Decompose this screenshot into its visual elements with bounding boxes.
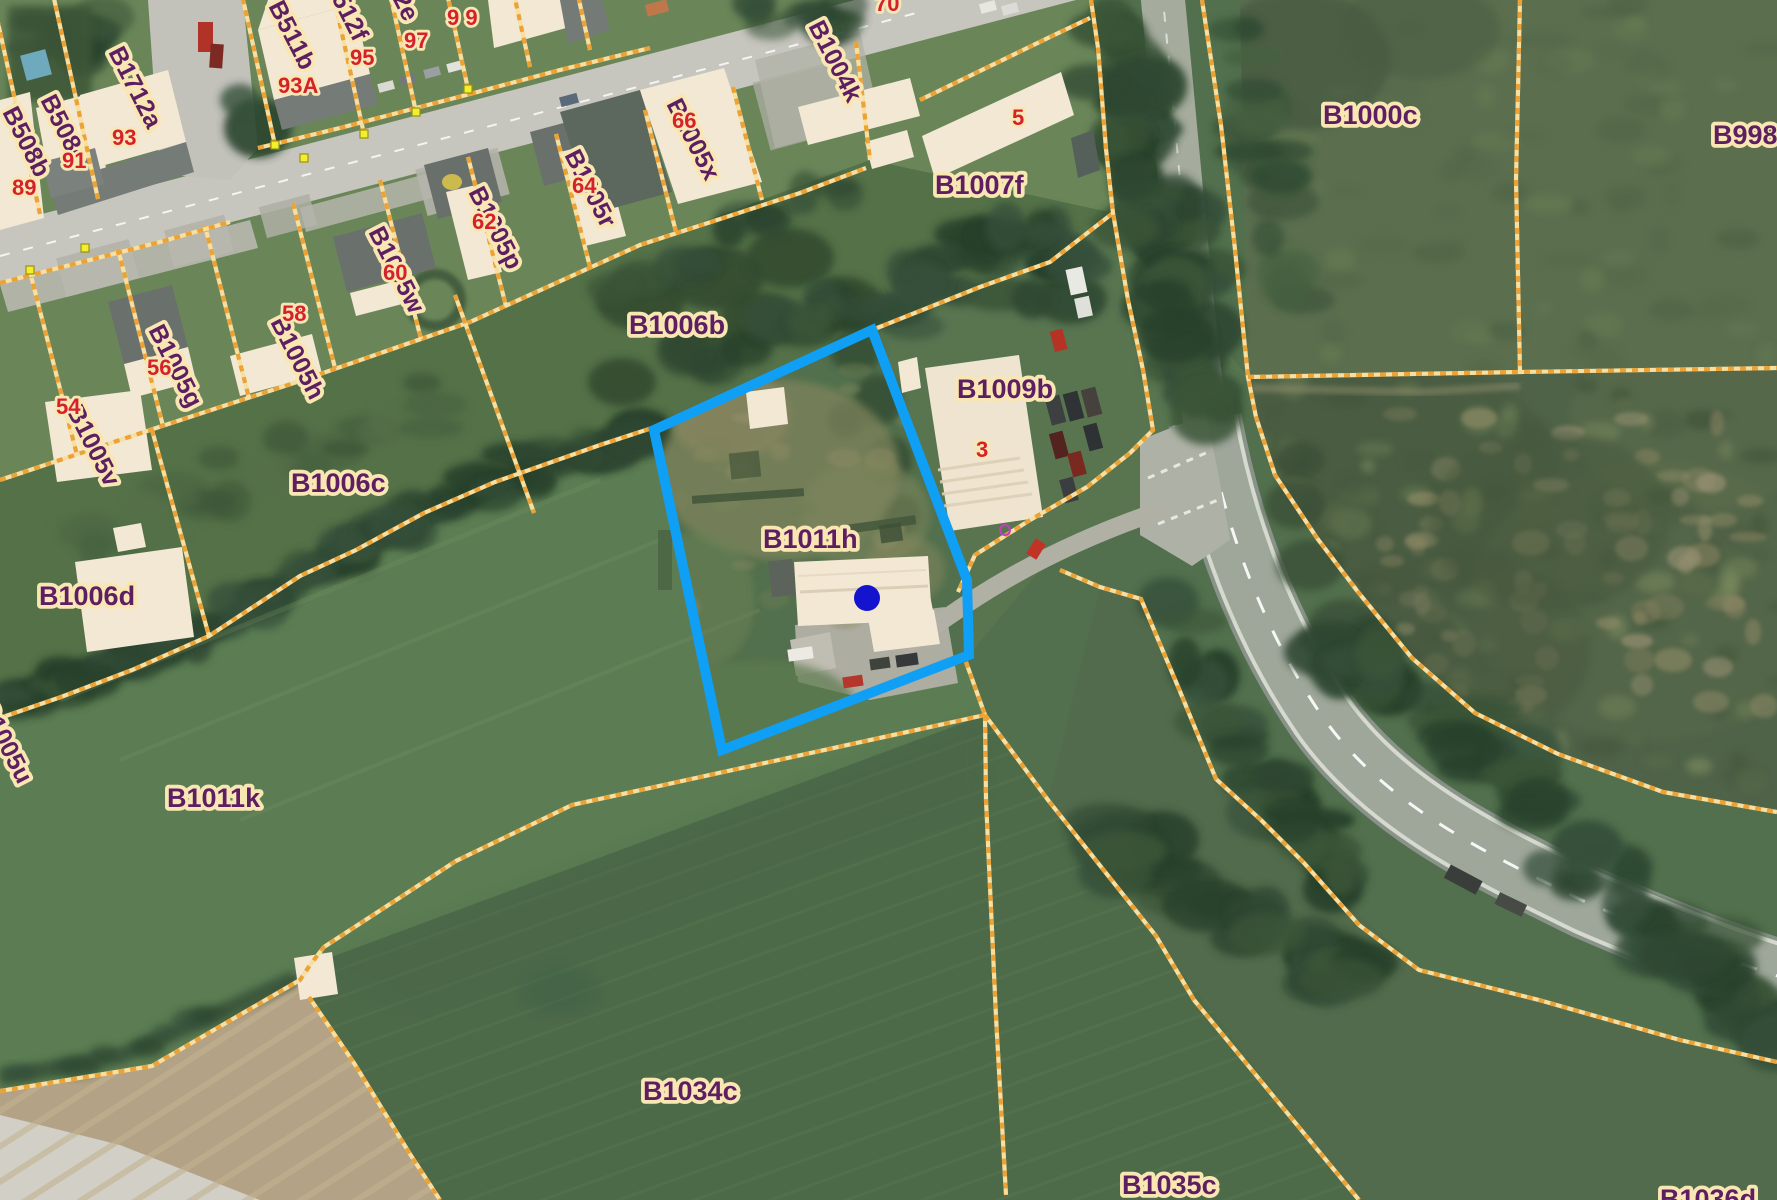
svg-text:91: 91 <box>62 148 86 173</box>
svg-text:B1036d: B1036d <box>1660 1184 1756 1200</box>
svg-text:B1007f: B1007f <box>935 170 1025 200</box>
svg-text:56: 56 <box>147 355 171 380</box>
svg-text:66: 66 <box>672 108 696 133</box>
svg-text:93A: 93A <box>278 73 318 98</box>
svg-text:B1006d: B1006d <box>39 581 135 611</box>
svg-text:62: 62 <box>472 209 496 234</box>
svg-text:60: 60 <box>383 260 407 285</box>
svg-text:5: 5 <box>1012 105 1024 130</box>
svg-text:54: 54 <box>56 394 81 419</box>
svg-text:B998a: B998a <box>1713 120 1777 150</box>
svg-text:B1034c: B1034c <box>643 1076 738 1106</box>
svg-text:58: 58 <box>282 301 306 326</box>
svg-text:89: 89 <box>12 175 36 200</box>
svg-text:70: 70 <box>875 0 899 16</box>
svg-text:9 9: 9 9 <box>447 5 478 30</box>
svg-text:B1035c: B1035c <box>1122 1170 1217 1200</box>
svg-text:B1006b: B1006b <box>629 310 725 340</box>
svg-text:B1011k: B1011k <box>167 783 261 813</box>
svg-text:B1009b: B1009b <box>957 374 1053 404</box>
svg-text:93: 93 <box>112 125 136 150</box>
svg-text:B1006c: B1006c <box>291 468 386 498</box>
svg-text:B1011h: B1011h <box>763 524 858 554</box>
svg-text:B1000c: B1000c <box>1323 100 1418 130</box>
svg-text:64: 64 <box>572 173 597 198</box>
svg-text:95: 95 <box>350 45 374 70</box>
svg-text:97: 97 <box>404 28 428 53</box>
svg-text:3: 3 <box>976 437 988 462</box>
